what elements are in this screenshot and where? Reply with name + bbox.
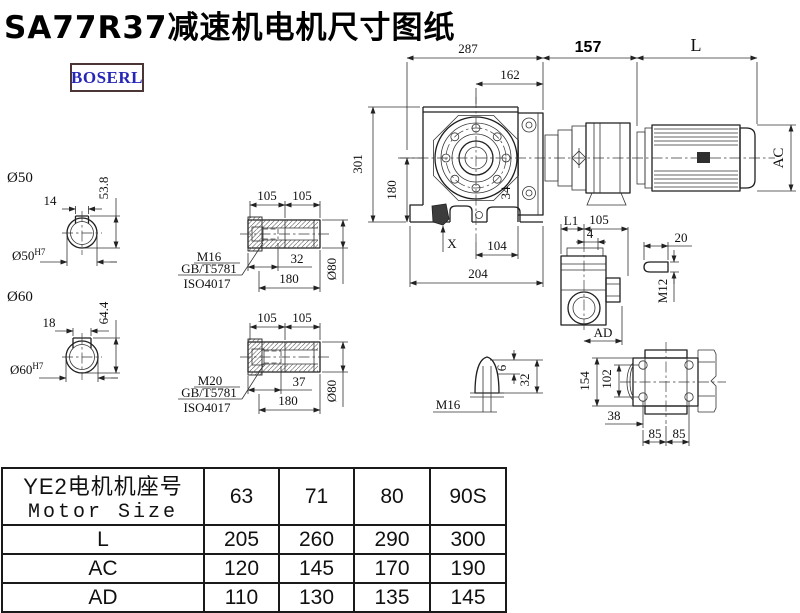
table-row-AC: AC 120 145 170 190 bbox=[2, 554, 506, 583]
shaft-section-60: 18 64.4 Ø60 Ø60H7 bbox=[7, 289, 120, 382]
dim-180-label: 180 bbox=[278, 393, 298, 408]
dim-d80-label: Ø80 bbox=[324, 380, 339, 402]
dim-157-label: 157 bbox=[575, 39, 602, 56]
dim-154-label: 154 bbox=[577, 371, 592, 391]
column-90S: 90S bbox=[430, 468, 506, 525]
dim-d60-label: Ø60 bbox=[7, 289, 33, 305]
sleeve-detail-m16: 105 105 32 180 Ø80 M16 GB/T5781 ISO4017 bbox=[178, 188, 348, 292]
dim-162-label: 162 bbox=[500, 67, 520, 82]
value-cell: 170 bbox=[354, 554, 430, 583]
dim-d50h7-label: Ø50H7 bbox=[12, 247, 46, 263]
value-cell: 130 bbox=[279, 583, 354, 612]
dim-32-label: 32 bbox=[517, 374, 532, 387]
dim-105-label: 105 bbox=[257, 310, 277, 325]
value-cell: 120 bbox=[204, 554, 279, 583]
dim-53.8-label: 53.8 bbox=[96, 177, 111, 200]
dim-20-label: 20 bbox=[675, 230, 688, 245]
dim-204-label: 204 bbox=[468, 266, 488, 281]
dim-18-label: 18 bbox=[43, 315, 56, 330]
dim-180-label: 180 bbox=[384, 180, 399, 200]
table-row-L: L 205 260 290 300 bbox=[2, 525, 506, 554]
value-cell: 190 bbox=[430, 554, 506, 583]
motor-size-table: YE2电机机座号 Motor Size 63 71 80 90S L 205 2… bbox=[1, 467, 507, 613]
header-label-cn: YE2电机机座号 bbox=[3, 469, 203, 501]
value-cell: 135 bbox=[354, 583, 430, 612]
dim-32-label: 32 bbox=[291, 251, 304, 266]
dim-105-label: 105 bbox=[257, 188, 277, 203]
dim-105-label: 105 bbox=[292, 310, 312, 325]
dim-L-label: L bbox=[691, 35, 702, 55]
dim-d50-label: Ø50 bbox=[7, 170, 33, 186]
value-cell: 290 bbox=[354, 525, 430, 554]
dim-287-label: 287 bbox=[458, 41, 478, 56]
gearbox-side-view: L1 105 4 AD bbox=[561, 212, 628, 345]
value-cell: 145 bbox=[279, 554, 354, 583]
dim-d80-label: Ø80 bbox=[324, 258, 339, 280]
dim-85-label: 85 bbox=[649, 426, 662, 441]
dim-X-label: X bbox=[447, 236, 457, 251]
dim-85-label: 85 bbox=[673, 426, 686, 441]
dim-6-label: 6 bbox=[494, 364, 509, 371]
dim-105-label: 105 bbox=[589, 212, 609, 227]
table-row-AD: AD 110 130 135 145 bbox=[2, 583, 506, 612]
header-label-en: Motor Size bbox=[3, 501, 203, 524]
row-label-L: L bbox=[2, 525, 204, 554]
dim-14-label: 14 bbox=[44, 193, 58, 208]
dim-37-label: 37 bbox=[293, 374, 307, 389]
sleeve-detail-m20: 105 105 37 180 Ø80 M20 GB/T5781 ISO4017 bbox=[178, 310, 348, 415]
dim-L1-label: L1 bbox=[564, 213, 578, 228]
column-71: 71 bbox=[279, 468, 354, 525]
dim-4-label: 4 bbox=[587, 226, 594, 241]
value-cell: 205 bbox=[204, 525, 279, 554]
row-label-AC: AC bbox=[2, 554, 204, 583]
value-cell: 145 bbox=[430, 583, 506, 612]
key-detail: 20 M12 bbox=[644, 230, 692, 303]
value-cell: 260 bbox=[279, 525, 354, 554]
bolt-standard-iso: ISO4017 bbox=[184, 276, 231, 291]
shaft-section-50: 14 53.8 Ø50 Ø50H7 bbox=[7, 170, 120, 266]
dim-AD-label: AD bbox=[594, 325, 613, 340]
table-header-row: YE2电机机座号 Motor Size 63 71 80 90S bbox=[2, 468, 506, 525]
dim-M12-label: M12 bbox=[655, 279, 670, 304]
breather-plug-detail: M16 6 32 bbox=[433, 350, 543, 412]
drawing-sheet: SA77R37减速机电机尺寸图纸 BOSERL bbox=[0, 0, 800, 613]
header-motor-size-cell: YE2电机机座号 Motor Size bbox=[2, 468, 204, 525]
dim-301-label: 301 bbox=[350, 154, 365, 174]
dim-M16-label: M16 bbox=[436, 397, 461, 412]
gearbox-rear-view: 154 102 38 85 85 bbox=[577, 342, 726, 446]
technical-drawing: 34 287 bbox=[0, 0, 800, 465]
dim-102-label: 102 bbox=[599, 369, 614, 389]
dim-d60h7-label: Ø60H7 bbox=[10, 361, 44, 377]
dim-AC-label: AC bbox=[771, 148, 787, 169]
value-cell: 300 bbox=[430, 525, 506, 554]
column-63: 63 bbox=[204, 468, 279, 525]
dim-180-label: 180 bbox=[279, 271, 299, 286]
value-cell: 110 bbox=[204, 583, 279, 612]
column-80: 80 bbox=[354, 468, 430, 525]
dim-105-label: 105 bbox=[292, 188, 312, 203]
dim-38-label: 38 bbox=[608, 408, 621, 423]
bolt-standard-iso: ISO4017 bbox=[184, 400, 231, 415]
dim-34-label: 34 bbox=[498, 186, 513, 200]
row-label-AD: AD bbox=[2, 583, 204, 612]
front-view-dimensions: 301 180 X 104 204 bbox=[350, 107, 543, 287]
top-dimensions: 287 162 157 L AC bbox=[407, 35, 796, 191]
dim-64.4-label: 64.4 bbox=[96, 301, 111, 324]
motor-side-view bbox=[545, 123, 755, 205]
dim-104-label: 104 bbox=[487, 238, 507, 253]
